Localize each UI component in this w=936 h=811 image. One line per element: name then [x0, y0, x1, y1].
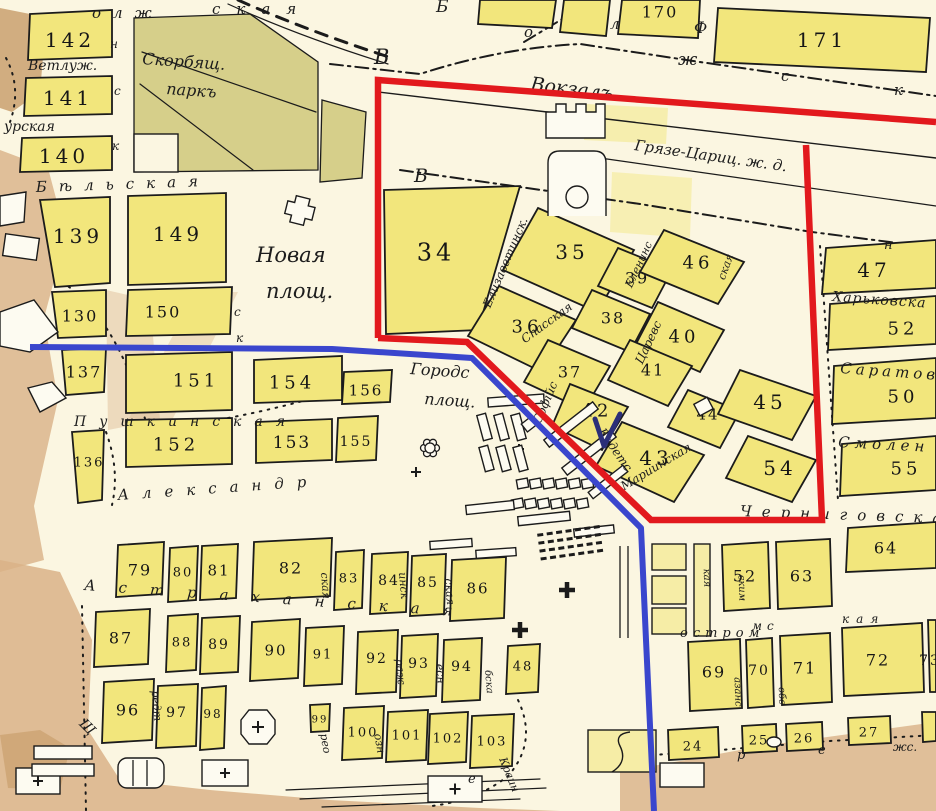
block-number-102: 102 [433, 732, 464, 747]
street-label: урская [3, 119, 55, 135]
block-number-87: 87 [109, 629, 133, 648]
block-number-156: 156 [349, 381, 384, 399]
street-label: площ. [266, 279, 333, 303]
street-label: кая [842, 612, 885, 626]
block-number-153: 153 [273, 433, 311, 453]
building [118, 758, 164, 788]
block-number-152: 152 [153, 434, 199, 455]
block-number-171: 171 [797, 28, 847, 52]
street-label: кая [701, 568, 713, 587]
street-label: олж [92, 4, 164, 22]
market-stall [550, 498, 562, 509]
block-number-26: 26 [794, 732, 815, 747]
street-label: л [610, 15, 620, 33]
block-number-83: 83 [339, 572, 360, 587]
block-number-130: 130 [62, 307, 99, 326]
street-label: есн [433, 663, 448, 684]
block-number-46: 46 [683, 252, 714, 273]
block-number-73: 73 [919, 653, 936, 669]
block-number-27: 27 [859, 726, 880, 741]
city-block-edge [478, 0, 556, 28]
market-stall [542, 478, 554, 489]
block-number-25: 25 [749, 734, 770, 749]
market-stall [537, 498, 549, 509]
block-number-94: 94 [451, 659, 473, 675]
street-label: инск [396, 572, 411, 601]
street-label: В [413, 165, 428, 187]
block-number-48: 48 [513, 660, 534, 675]
chapel-icon [425, 443, 435, 453]
street-label: к [112, 139, 120, 153]
street-label: н [110, 37, 118, 51]
street-label: с [114, 84, 121, 98]
market-stall [568, 478, 580, 489]
block-number-151: 151 [173, 370, 219, 391]
market-stall [563, 498, 575, 509]
block-number-38: 38 [601, 309, 625, 328]
street-label: В [373, 45, 389, 69]
street-label: бска [482, 670, 495, 695]
street-label: с [781, 67, 790, 85]
block-number-47: 47 [857, 258, 890, 282]
street-label: к [894, 81, 903, 99]
map-canvas[interactable]: 1421411401391491301501371361511541561521… [0, 0, 936, 811]
well-icon [767, 737, 781, 747]
street-label: н [884, 238, 893, 253]
street-label: е [468, 772, 476, 787]
street-label: обс [776, 687, 788, 705]
street-label: ская [318, 572, 333, 600]
block-number-24: 24 [683, 740, 704, 755]
block-number-81: 81 [207, 561, 230, 579]
street-label: к [236, 331, 244, 345]
block-number-101: 101 [392, 729, 423, 744]
block-number-149: 149 [153, 222, 203, 246]
historical-city-map[interactable]: 1421411401391491301501371361511541561521… [0, 0, 936, 811]
market-stall [555, 478, 567, 489]
block-number-35: 35 [555, 240, 588, 264]
market-stall [576, 498, 588, 509]
block-number-92: 92 [366, 651, 388, 667]
block-number-40: 40 [669, 326, 700, 347]
block-number-45: 45 [753, 390, 786, 414]
street-label: паркъ [166, 79, 218, 101]
block-number-99: 99 [312, 715, 329, 726]
block-number-155: 155 [340, 434, 373, 450]
block-number-72: 72 [866, 651, 890, 670]
market-stall [529, 478, 541, 489]
street-label: Ф [694, 18, 707, 37]
block-number-64: 64 [874, 539, 898, 558]
block-number-70: 70 [748, 663, 770, 679]
block-number-96: 96 [116, 701, 140, 720]
park-clearing [134, 134, 178, 172]
building [34, 746, 92, 759]
block-number-54: 54 [763, 456, 796, 480]
street-label: ская [212, 0, 312, 18]
building [0, 192, 26, 226]
building [652, 576, 686, 604]
block-number-90: 90 [264, 641, 287, 659]
water-tower-icon [548, 151, 606, 216]
street-label: р [737, 748, 746, 763]
street-label: площ. [424, 389, 476, 412]
block-number-142: 142 [45, 28, 95, 52]
street-label: редт [149, 690, 165, 722]
street-label: ским [736, 575, 748, 602]
block-number-154: 154 [269, 372, 315, 393]
block-number-141: 141 [43, 86, 93, 110]
building [32, 764, 94, 776]
street-label: жс. [893, 740, 917, 754]
block-number-71: 71 [793, 659, 817, 678]
block-number-55: 55 [891, 458, 922, 479]
building [694, 544, 710, 636]
block-number-140: 140 [39, 144, 89, 168]
city-block-edge [560, 0, 610, 36]
chapel-icon [421, 439, 440, 456]
block-number-137: 137 [66, 363, 103, 382]
block-number-170: 170 [642, 3, 679, 22]
building [3, 234, 40, 261]
block-number-37: 37 [558, 363, 582, 382]
block-number-85: 85 [417, 575, 439, 591]
city-block-edge [922, 712, 936, 742]
building [652, 544, 686, 570]
block-number-50: 50 [888, 386, 919, 407]
street-label: Новая [255, 243, 326, 267]
street-label: мс [752, 619, 779, 633]
street-label: ская [442, 578, 457, 606]
block-number-89: 89 [208, 637, 230, 653]
street-label: Б [435, 0, 449, 17]
block-number-91: 91 [313, 648, 334, 663]
wash [610, 172, 692, 238]
block-number-82: 82 [279, 559, 303, 578]
market-stall [516, 478, 528, 489]
market-stall [524, 498, 536, 509]
street-label: с [234, 305, 241, 319]
street-label: Пушкинская [73, 414, 298, 430]
street-label: азанс [731, 677, 743, 707]
street-label: ж [678, 50, 698, 70]
block-number-63: 63 [790, 567, 814, 586]
block-number-136: 136 [74, 456, 105, 471]
block-number-103: 103 [477, 735, 508, 750]
block-number-88: 88 [172, 636, 193, 651]
park-area [320, 100, 366, 182]
block-number-97: 97 [166, 705, 188, 721]
block-number-34: 34 [417, 238, 456, 266]
street-label: Ветлуж. [27, 58, 97, 74]
block-number-52: 52 [888, 318, 919, 339]
block-number-80: 80 [173, 566, 194, 581]
block-number-69: 69 [702, 663, 726, 682]
block-number-79: 79 [128, 561, 152, 580]
block-number-86: 86 [466, 579, 489, 597]
street-label: е [818, 743, 826, 758]
block-number-98: 98 [203, 707, 222, 721]
block-number-93: 93 [408, 656, 430, 672]
street-label: о [524, 23, 533, 41]
building [660, 763, 704, 787]
block-number-139: 139 [53, 224, 103, 248]
street-label: раж [393, 658, 408, 686]
block-number-150: 150 [145, 303, 182, 322]
